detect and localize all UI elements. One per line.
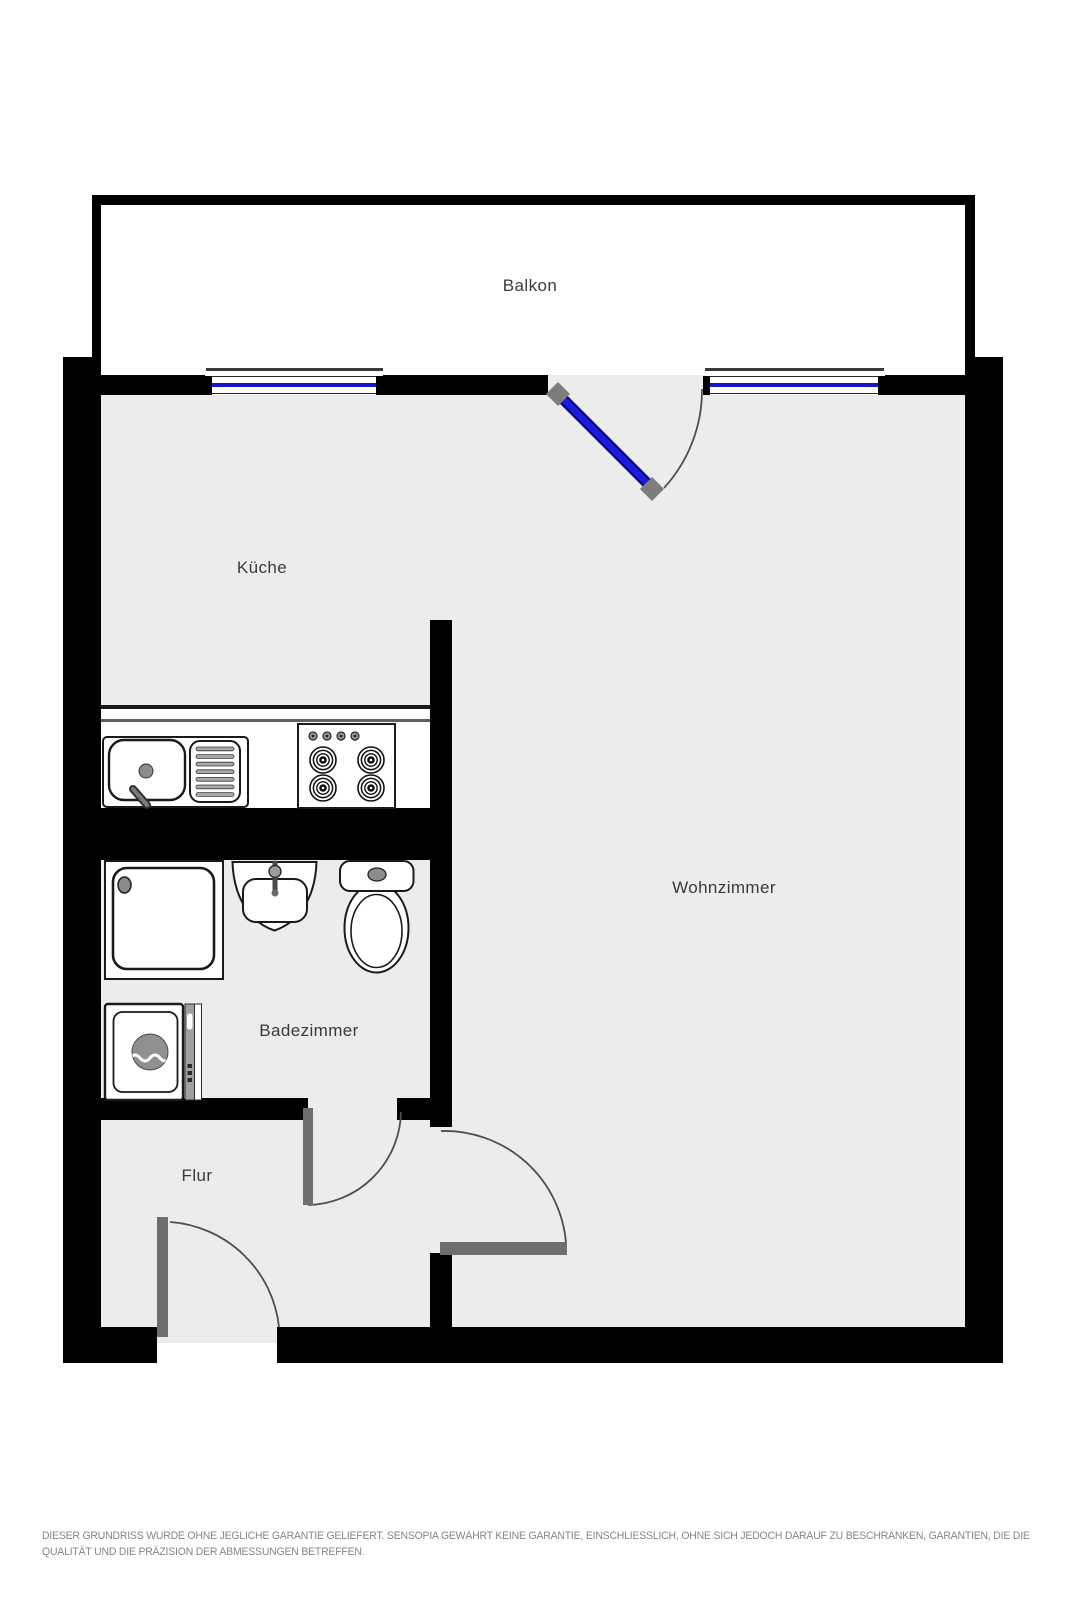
wall-top-segment-b	[383, 375, 548, 395]
balcony-doorway-floor	[548, 375, 703, 395]
disclaimer-line-1: DIESER GRUNDRISS WURDE OHNE JEGLICHE GAR…	[42, 1529, 1011, 1545]
window-cap	[376, 376, 383, 395]
disclaimer-line-2: QUALITÄT UND DIE PRÄZISION DER ABMESSUNG…	[42, 1545, 1011, 1561]
wall-divider-lower	[430, 1253, 452, 1327]
window-sill	[705, 368, 884, 371]
wall-left	[63, 357, 101, 1363]
room-label-kueche: Küche	[237, 558, 287, 578]
wall-bathroom-bottom	[101, 1098, 308, 1120]
room-label-balkon: Balkon	[503, 276, 557, 296]
floor-plan: Balkon Küche Wohnzimmer Badezimmer Flur …	[0, 0, 1067, 1600]
window-glass	[710, 383, 878, 388]
wall-bathroom-stub	[397, 1098, 452, 1120]
kitchen-window	[205, 376, 383, 394]
entrance-doorway-floor	[157, 1327, 277, 1343]
window-cap	[703, 376, 710, 395]
wall-kitchen-bottom	[101, 808, 452, 860]
wall-bottom-left	[63, 1327, 157, 1363]
wall-bottom-right	[277, 1327, 1003, 1363]
wall-balcony-left	[92, 205, 101, 375]
window-glass	[212, 383, 376, 388]
wall-right	[965, 357, 1003, 1363]
room-label-wohnzimmer: Wohnzimmer	[672, 878, 776, 898]
living-room-window	[703, 376, 885, 394]
wall-top-segment-c	[885, 375, 965, 395]
room-label-flur: Flur	[182, 1166, 213, 1186]
window-sill	[206, 368, 383, 371]
apartment-floor	[101, 395, 965, 1327]
wall-balcony-top	[92, 195, 975, 205]
wall-top-segment-a	[101, 375, 205, 395]
wall-balcony-right	[965, 205, 975, 357]
room-label-badezimmer: Badezimmer	[259, 1021, 358, 1041]
window-cap	[878, 376, 885, 395]
window-cap	[205, 376, 212, 395]
disclaimer: DIESER GRUNDRISS WURDE OHNE JEGLICHE GAR…	[42, 1529, 1011, 1560]
wall-divider	[430, 620, 452, 1127]
